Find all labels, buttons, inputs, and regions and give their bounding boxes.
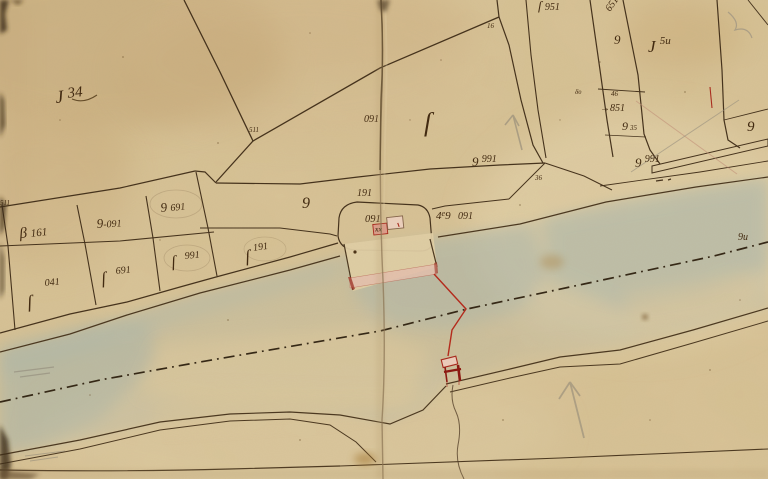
svg-text:9u: 9u bbox=[738, 232, 748, 243]
svg-text:9: 9 bbox=[622, 119, 628, 133]
svg-text:091: 091 bbox=[458, 211, 473, 222]
svg-text:→851: →851 bbox=[600, 103, 625, 114]
svg-text:δυ: δυ bbox=[575, 88, 581, 96]
svg-text:991: 991 bbox=[184, 249, 200, 262]
svg-text:511: 511 bbox=[249, 126, 259, 134]
svg-text:9: 9 bbox=[302, 195, 310, 212]
svg-text:041: 041 bbox=[44, 276, 60, 289]
svg-text:691: 691 bbox=[115, 264, 131, 277]
svg-text:35: 35 bbox=[629, 124, 638, 132]
svg-text:191: 191 bbox=[357, 188, 372, 199]
svg-text:36: 36 bbox=[534, 174, 543, 182]
svg-text:46: 46 bbox=[611, 90, 619, 98]
svg-text:9: 9 bbox=[614, 32, 621, 47]
svg-text:9: 9 bbox=[747, 119, 755, 135]
svg-text:ſ 951: ſ 951 bbox=[538, 0, 560, 13]
svg-text:16: 16 bbox=[487, 22, 495, 30]
